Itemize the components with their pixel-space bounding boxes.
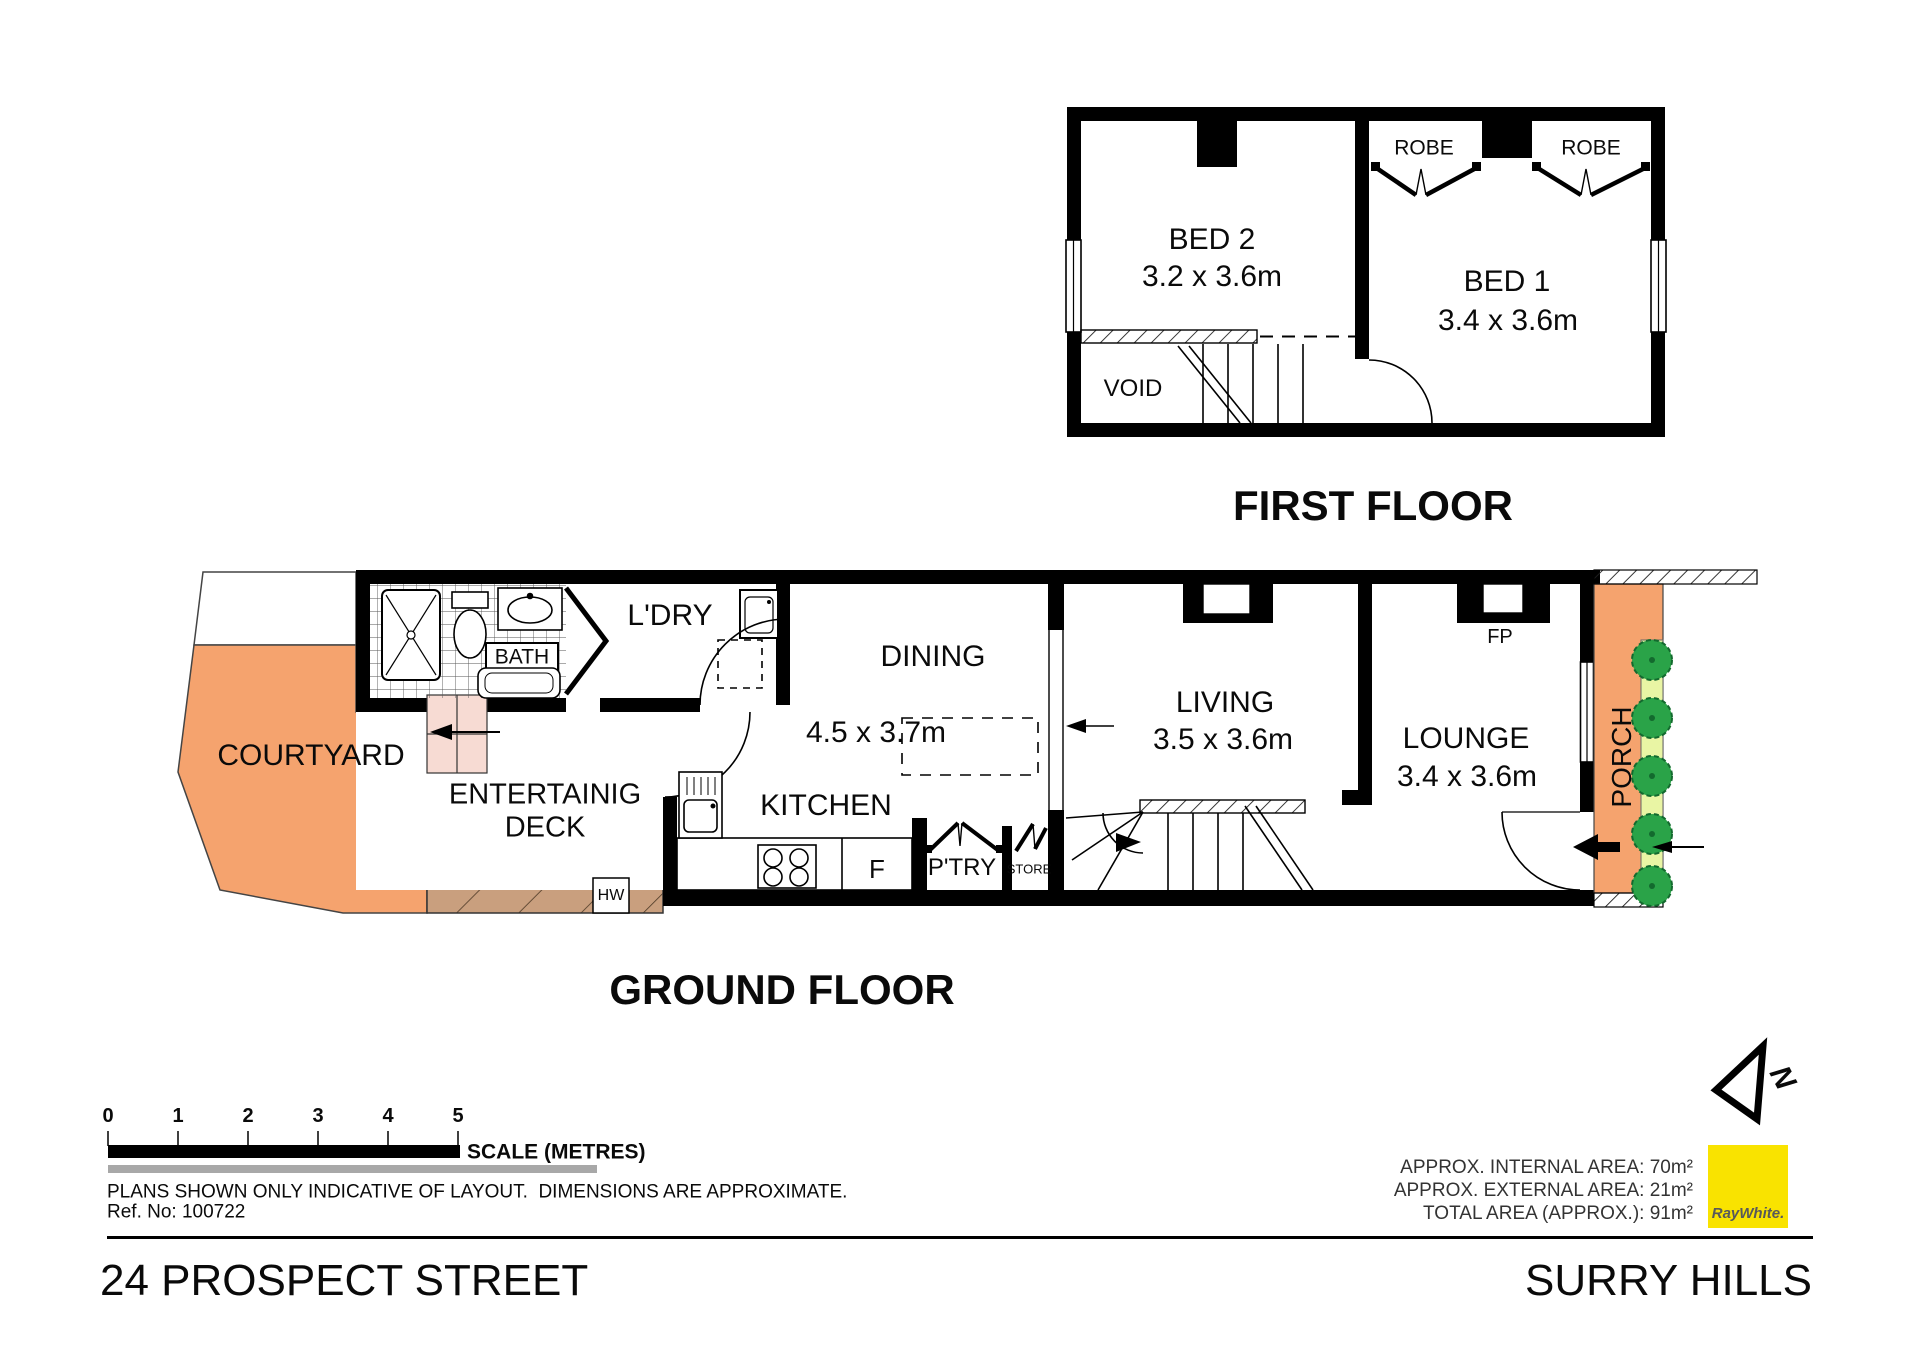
footer-rule bbox=[107, 1236, 1813, 1239]
area-summary: APPROX. INTERNAL AREA: 70m² APPROX. EXTE… bbox=[1394, 1156, 1693, 1225]
disclaimer-text: PLANS SHOWN ONLY INDICATIVE OF LAYOUT. D… bbox=[107, 1183, 847, 1202]
room-dims-lounge: 3.4 x 3.6m bbox=[1397, 762, 1537, 792]
robe-label-left: ROBE bbox=[1394, 138, 1454, 159]
shower-icon bbox=[382, 590, 440, 680]
scale-tick-0: 0 bbox=[102, 1106, 113, 1126]
scale-tick-3: 3 bbox=[312, 1106, 323, 1126]
area-external: APPROX. EXTERNAL AREA: 21m² bbox=[1394, 1179, 1693, 1202]
room-label-bath: BATH bbox=[495, 647, 549, 668]
room-label-dining: DINING bbox=[881, 642, 986, 672]
suburb-title: SURRY HILLS bbox=[1525, 1256, 1812, 1306]
toilet-icon bbox=[452, 592, 488, 658]
compass-icon bbox=[1716, 1046, 1763, 1119]
fridge-label: F bbox=[869, 856, 885, 882]
robe-label-right: ROBE bbox=[1561, 138, 1621, 159]
room-label-bed1: BED 1 bbox=[1464, 267, 1551, 297]
scale-tick-5: 5 bbox=[452, 1106, 463, 1126]
room-label-courtyard: COURTYARD bbox=[217, 741, 404, 771]
room-label-deck-1: ENTERTAINIG bbox=[449, 781, 641, 810]
fireplace-label: FP bbox=[1487, 627, 1513, 647]
window-icon bbox=[1581, 662, 1594, 762]
scale-tick-1: 1 bbox=[172, 1106, 183, 1126]
floorplan-graphics bbox=[0, 0, 1920, 1357]
room-label-kitchen: KITCHEN bbox=[760, 791, 892, 821]
ref-number: Ref. No: 100722 bbox=[107, 1203, 245, 1222]
fireplace-icon bbox=[1457, 584, 1550, 623]
scale-label: SCALE (METRES) bbox=[467, 1142, 646, 1163]
sink-icon bbox=[679, 772, 722, 838]
room-label-porch: PORCH bbox=[1608, 706, 1636, 807]
room-label-lounge: LOUNGE bbox=[1403, 724, 1530, 754]
store-label: STORE bbox=[1007, 863, 1052, 876]
hot-water-label: HW bbox=[598, 888, 625, 904]
room-dims-bed2: 3.2 x 3.6m bbox=[1142, 262, 1282, 292]
room-label-deck-2: DECK bbox=[505, 814, 586, 843]
first-floor-title: FIRST FLOOR bbox=[1233, 485, 1513, 527]
scale-tick-2: 2 bbox=[242, 1106, 253, 1126]
room-label-laundry: L'DRY bbox=[627, 601, 712, 631]
brand-name: RayWhite. bbox=[1712, 1205, 1785, 1228]
void-label: VOID bbox=[1104, 377, 1163, 401]
basin-icon bbox=[498, 588, 562, 630]
area-internal: APPROX. INTERNAL AREA: 70m² bbox=[1394, 1156, 1693, 1179]
scale-tick-4: 4 bbox=[382, 1106, 393, 1126]
washing-machine-icon bbox=[740, 590, 778, 638]
stove-icon bbox=[758, 845, 816, 888]
floorplan-page: BED 2 3.2 x 3.6m BED 1 3.4 x 3.6m ROBE R… bbox=[0, 0, 1920, 1357]
room-dims-dining: 4.5 x 3.7m bbox=[806, 718, 946, 748]
area-total: TOTAL AREA (APPROX.): 91m² bbox=[1394, 1202, 1693, 1225]
room-dims-bed1: 3.4 x 3.6m bbox=[1438, 306, 1578, 336]
ground-floor-title: GROUND FLOOR bbox=[609, 969, 954, 1011]
pantry-label: P'TRY bbox=[928, 856, 996, 880]
street-title: 24 PROSPECT STREET bbox=[100, 1256, 588, 1306]
room-dims-living: 3.5 x 3.6m bbox=[1153, 725, 1293, 755]
room-label-bed2: BED 2 bbox=[1169, 225, 1256, 255]
bathtub-icon bbox=[478, 668, 560, 698]
raywhite-logo: RayWhite. bbox=[1708, 1145, 1788, 1228]
window-icon bbox=[1066, 240, 1081, 332]
room-label-living: LIVING bbox=[1176, 688, 1274, 718]
chimney-pier bbox=[1197, 119, 1237, 167]
window-icon bbox=[1651, 240, 1666, 332]
